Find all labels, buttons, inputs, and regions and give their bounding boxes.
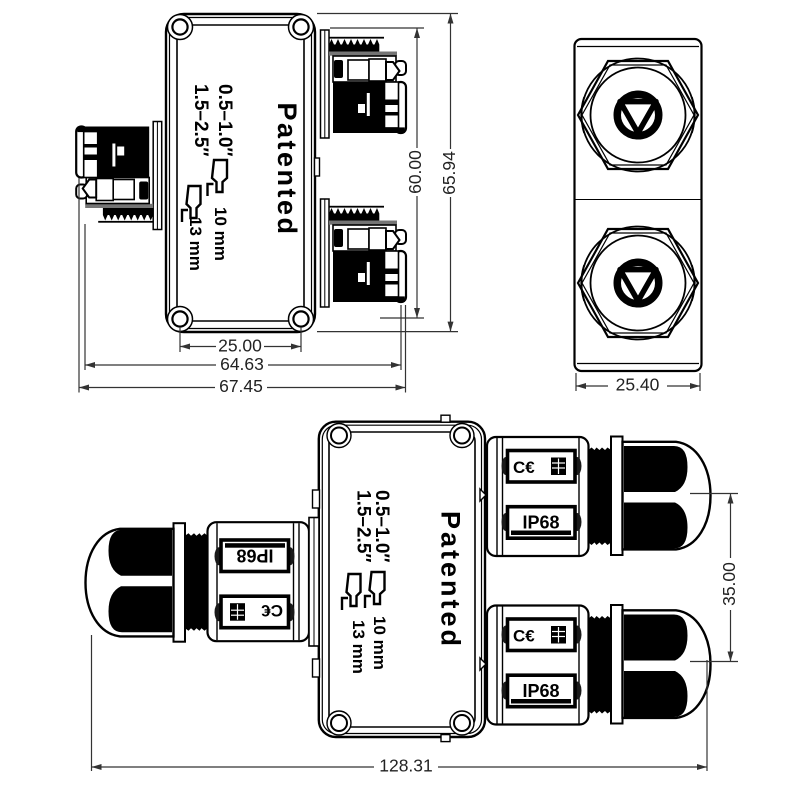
svg-text:64.63: 64.63 [220, 354, 264, 374]
svg-text:128.31: 128.31 [379, 756, 433, 776]
svg-text:10 mm: 10 mm [211, 207, 230, 261]
svg-text:Patented: Patented [272, 103, 302, 237]
svg-text:10 mm: 10 mm [370, 616, 389, 670]
svg-text:C€: C€ [513, 458, 535, 477]
svg-text:65.94: 65.94 [439, 151, 459, 195]
svg-text:60.00: 60.00 [405, 150, 425, 194]
svg-text:1.5–2.5″: 1.5–2.5″ [353, 490, 374, 563]
svg-text:13 mm: 13 mm [186, 217, 205, 271]
svg-text:IP68: IP68 [522, 513, 559, 533]
svg-text:25.00: 25.00 [218, 336, 262, 356]
svg-text:Patented: Patented [436, 511, 466, 649]
svg-text:0.5–1.0″: 0.5–1.0″ [214, 84, 235, 157]
svg-text:67.45: 67.45 [219, 376, 263, 396]
svg-text:1.5–2.5″: 1.5–2.5″ [190, 84, 211, 157]
svg-text:25.40: 25.40 [616, 375, 660, 395]
svg-text:13 mm: 13 mm [349, 620, 368, 674]
svg-text:35.00: 35.00 [719, 562, 739, 606]
